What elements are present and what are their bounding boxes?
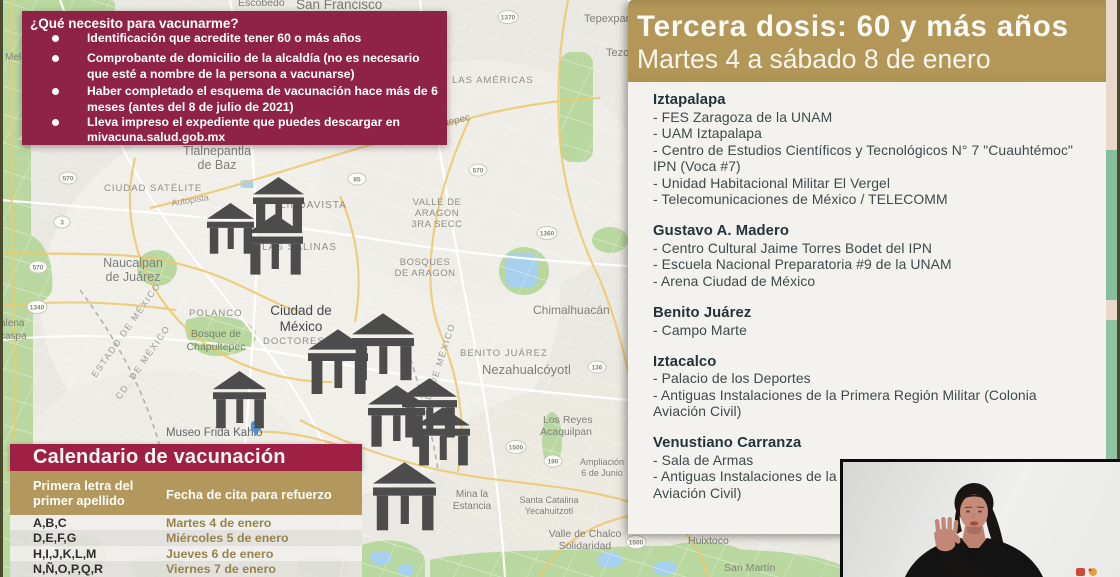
- svg-text:Los Reyes: Los Reyes: [543, 414, 593, 426]
- svg-text:Tepexpan: Tepexpan: [584, 13, 632, 25]
- svg-text:de Baz: de Baz: [198, 158, 237, 172]
- svg-text:Yecahuitzotl: Yecahuitzotl: [525, 506, 573, 516]
- svg-text:Santa Catalina: Santa Catalina: [519, 495, 578, 505]
- svg-text:Chimalhuacán: Chimalhuacán: [533, 303, 610, 317]
- svg-text:570: 570: [63, 176, 74, 183]
- svg-text:136: 136: [592, 365, 603, 372]
- svg-text:alena: alena: [0, 318, 25, 329]
- svg-text:570: 570: [33, 265, 44, 272]
- svg-text:DE ARAGON: DE ARAGON: [395, 268, 456, 279]
- svg-text:Valle de Chalco: Valle de Chalco: [549, 528, 622, 540]
- svg-text:POLANCO: POLANCO: [189, 308, 242, 319]
- svg-text:570: 570: [473, 168, 484, 175]
- svg-text:1360: 1360: [540, 231, 555, 238]
- svg-text:Bosque de: Bosque de: [191, 328, 241, 340]
- svg-text:Mel: Mel: [5, 52, 21, 63]
- svg-text:Chapultepec: Chapultepec: [187, 341, 246, 353]
- svg-text:LAS AMÉRICAS: LAS AMÉRICAS: [452, 75, 534, 86]
- svg-text:VALLE DE: VALLE DE: [413, 197, 462, 208]
- svg-text:Estancia: Estancia: [453, 501, 492, 512]
- svg-text:85: 85: [353, 177, 361, 184]
- svg-text:BOSQUES: BOSQUES: [400, 257, 451, 268]
- svg-text:Ampliación: Ampliación: [580, 457, 624, 467]
- svg-text:3: 3: [60, 220, 64, 227]
- svg-text:1500: 1500: [509, 445, 524, 452]
- svg-text:190: 190: [548, 459, 559, 466]
- svg-text:de Juárez: de Juárez: [106, 270, 161, 284]
- svg-text:CIUDAD SATÉLITE: CIUDAD SATÉLITE: [104, 183, 202, 194]
- svg-text:3RA SECC: 3RA SECC: [412, 219, 463, 230]
- svg-text:BENITO JUÁREZ: BENITO JUÁREZ: [460, 348, 548, 359]
- svg-text:caspa: caspa: [0, 331, 27, 342]
- svg-text:Naucalpan: Naucalpan: [103, 256, 163, 270]
- svg-text:México: México: [280, 319, 323, 334]
- svg-text:Museo Frida Kahlo: Museo Frida Kahlo: [166, 427, 263, 439]
- svg-text:Nezahualcóyotl: Nezahualcóyotl: [482, 362, 571, 377]
- svg-text:6 de Junio: 6 de Junio: [581, 468, 623, 478]
- svg-text:Acaquilpan: Acaquilpan: [540, 426, 592, 438]
- svg-text:1340: 1340: [30, 305, 45, 312]
- svg-text:1370: 1370: [501, 15, 516, 22]
- svg-text:Huixtoco: Huixtoco: [688, 535, 729, 547]
- svg-text:Escobedo: Escobedo: [238, 0, 285, 9]
- svg-text:San Martín: San Martín: [724, 562, 776, 574]
- svg-text:Tlalnepantla: Tlalnepantla: [183, 144, 251, 158]
- svg-text:1500: 1500: [629, 540, 644, 547]
- svg-text:Ciudad de: Ciudad de: [270, 303, 332, 318]
- svg-text:Solidaridad: Solidaridad: [559, 540, 612, 552]
- svg-text:Mina la: Mina la: [456, 489, 489, 500]
- svg-text:ARAGON: ARAGON: [415, 208, 459, 219]
